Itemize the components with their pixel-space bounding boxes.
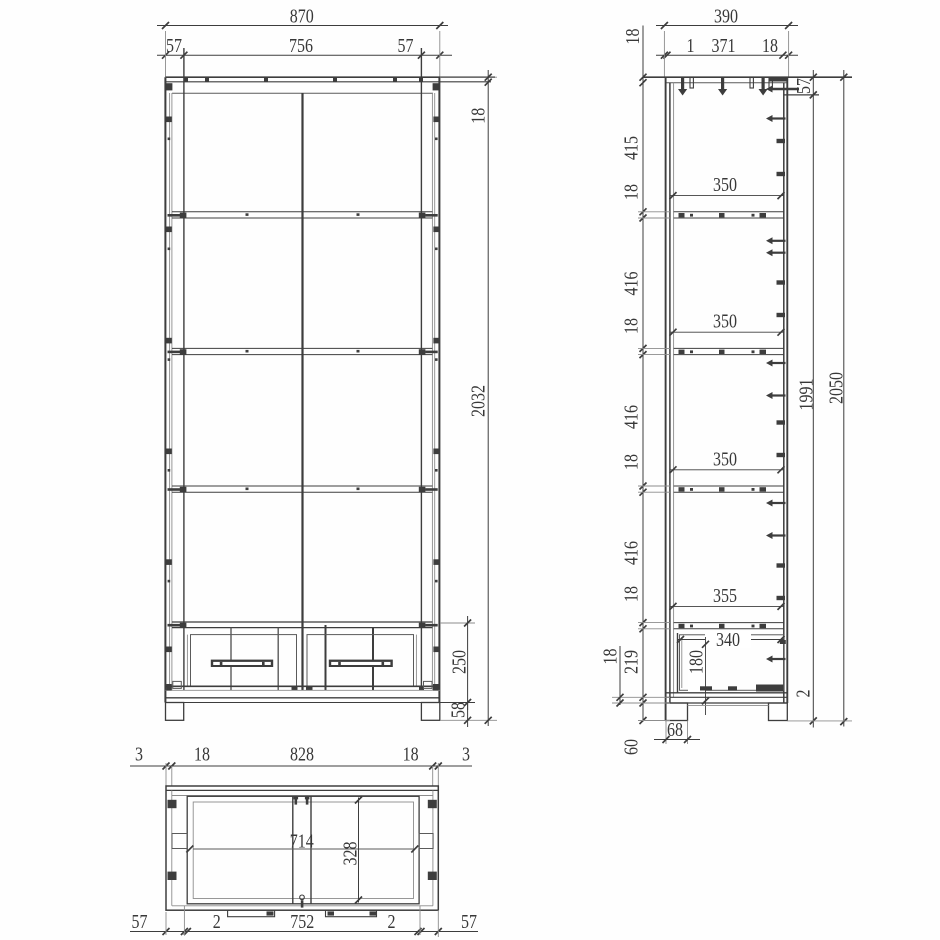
svg-text:350: 350 bbox=[713, 448, 737, 470]
svg-text:752: 752 bbox=[290, 911, 314, 933]
svg-text:18: 18 bbox=[621, 586, 643, 602]
svg-text:714: 714 bbox=[290, 830, 314, 852]
svg-text:415: 415 bbox=[621, 136, 643, 160]
svg-text:57: 57 bbox=[132, 911, 148, 933]
svg-text:57: 57 bbox=[793, 78, 815, 94]
svg-text:18: 18 bbox=[403, 743, 419, 765]
svg-text:416: 416 bbox=[621, 541, 643, 565]
svg-text:350: 350 bbox=[713, 174, 737, 196]
svg-text:328: 328 bbox=[340, 842, 362, 866]
svg-text:416: 416 bbox=[621, 272, 643, 296]
svg-text:57: 57 bbox=[166, 35, 182, 57]
svg-text:1: 1 bbox=[687, 35, 695, 57]
svg-text:18: 18 bbox=[622, 29, 644, 45]
svg-text:870: 870 bbox=[290, 6, 314, 28]
svg-text:18: 18 bbox=[621, 454, 643, 470]
svg-text:756: 756 bbox=[289, 35, 313, 57]
svg-text:3: 3 bbox=[135, 743, 143, 765]
svg-text:828: 828 bbox=[290, 743, 314, 765]
svg-text:58: 58 bbox=[448, 702, 470, 718]
svg-text:18: 18 bbox=[194, 743, 210, 765]
svg-text:250: 250 bbox=[449, 650, 471, 674]
svg-text:60: 60 bbox=[621, 739, 643, 755]
svg-text:57: 57 bbox=[461, 911, 477, 933]
svg-text:2032: 2032 bbox=[468, 385, 490, 417]
svg-text:2050: 2050 bbox=[826, 372, 848, 404]
svg-text:340: 340 bbox=[716, 629, 740, 651]
svg-text:3: 3 bbox=[462, 743, 470, 765]
svg-text:18: 18 bbox=[621, 184, 643, 200]
svg-text:2: 2 bbox=[213, 911, 221, 933]
svg-text:371: 371 bbox=[712, 35, 736, 57]
svg-text:416: 416 bbox=[621, 405, 643, 429]
svg-text:2: 2 bbox=[388, 911, 396, 933]
svg-text:68: 68 bbox=[667, 719, 683, 741]
svg-text:18: 18 bbox=[468, 108, 490, 124]
svg-text:57: 57 bbox=[398, 35, 414, 57]
svg-text:355: 355 bbox=[713, 585, 737, 607]
svg-text:219: 219 bbox=[621, 650, 643, 674]
svg-text:18: 18 bbox=[621, 318, 643, 334]
svg-text:180: 180 bbox=[686, 650, 708, 674]
svg-text:18: 18 bbox=[600, 649, 622, 665]
svg-text:350: 350 bbox=[713, 311, 737, 333]
svg-text:2: 2 bbox=[793, 690, 815, 698]
svg-text:18: 18 bbox=[762, 35, 778, 57]
svg-text:1991: 1991 bbox=[796, 379, 818, 411]
svg-text:390: 390 bbox=[714, 6, 738, 28]
